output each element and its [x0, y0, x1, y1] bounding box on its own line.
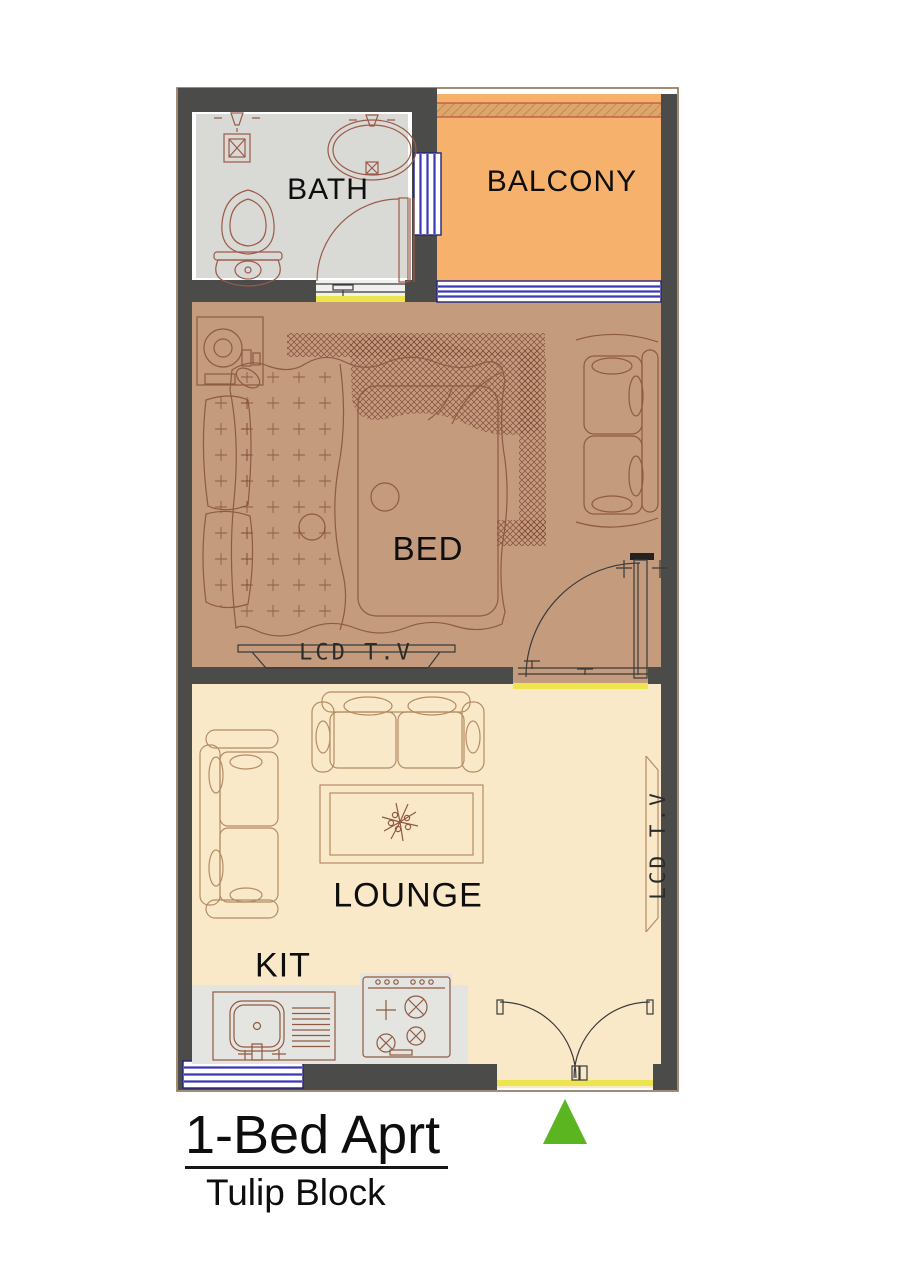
wall-left	[178, 88, 192, 1090]
wall-bed-lounge-right	[648, 667, 677, 684]
room-label-balcony: BALCONY	[487, 165, 637, 199]
north-arrow-icon	[543, 1099, 587, 1144]
floor-plan-page: BATH BALCONY BED LOUNGE KIT LCD T.V LCD …	[0, 0, 904, 1280]
pillows	[203, 396, 253, 608]
window-bath-balcony	[414, 153, 441, 235]
wall-bottom-right	[653, 1064, 677, 1090]
wall-bath-bottom-left	[178, 280, 316, 302]
window-kitchen	[183, 1061, 303, 1088]
floor-plan-drawing	[0, 0, 904, 1280]
wall-bed-lounge	[178, 667, 513, 684]
kitchen-counter	[192, 973, 468, 1064]
room-label-lounge: LOUNGE	[333, 877, 483, 916]
room-label-bed: BED	[393, 530, 464, 568]
label-lcd-tv-bed: LCD T.V	[299, 641, 413, 666]
room-label-bath: BATH	[287, 173, 369, 207]
wall-right	[661, 94, 677, 1090]
window-balcony-bottom	[437, 281, 661, 302]
balcony-ledge-hatch	[437, 103, 661, 117]
plan-title: 1-Bed Aprt	[185, 1104, 440, 1166]
title-underline	[185, 1166, 448, 1169]
room-label-kitchen: KIT	[255, 947, 311, 986]
plan-subtitle: Tulip Block	[206, 1172, 386, 1214]
wall-bath-bottom-right	[405, 280, 437, 302]
label-lcd-tv-lounge: LCD T.V	[646, 790, 670, 900]
wall-top-bath	[178, 88, 437, 112]
